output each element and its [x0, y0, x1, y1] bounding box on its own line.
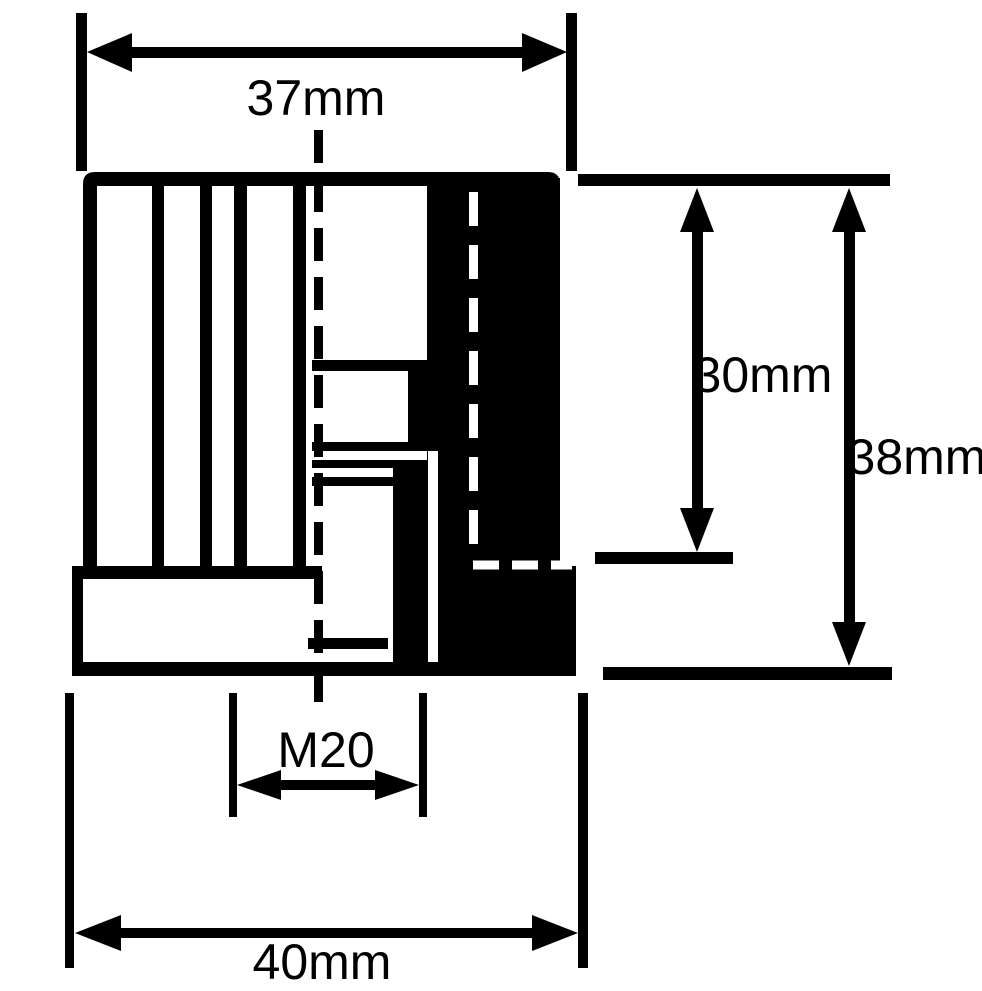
rib [152, 186, 164, 566]
section-white-slot [428, 451, 438, 662]
section-wall [427, 178, 560, 662]
section-thread-bar [312, 442, 438, 451]
arrowhead-left-icon [237, 770, 281, 800]
reference-line-top [578, 174, 890, 186]
section-bore-step-side [408, 360, 428, 451]
section-inner-solid [393, 460, 428, 662]
arrowhead-right-icon [375, 770, 419, 800]
flange-left-wall [72, 566, 83, 676]
flange-bottom-face [72, 662, 576, 676]
dimension-label-m20: M20 [277, 722, 374, 778]
section-white-reveals [428, 451, 438, 662]
rib [293, 186, 306, 566]
technical-drawing-canvas: 37mm 30mm 38mm M20 [0, 0, 982, 991]
arrowhead-down-icon [680, 508, 714, 552]
arrowhead-right-icon [532, 915, 578, 951]
threaded-insert-drawing: 37mm 30mm 38mm M20 [0, 0, 982, 991]
dimension-37mm: 37mm [76, 13, 577, 171]
rib [200, 186, 212, 566]
reference-line-bottom [603, 667, 892, 680]
dimension-arrow-shaft [844, 220, 855, 634]
arrowhead-right-icon [522, 33, 567, 72]
dimension-label-30mm: 30mm [694, 347, 833, 403]
body-left-wall [83, 186, 97, 566]
rib [234, 186, 247, 566]
reference-line-mid [595, 552, 733, 564]
dimension-right-side: 30mm 38mm [578, 174, 982, 680]
extension-line [578, 693, 588, 968]
extension-line [566, 13, 577, 171]
extension-line [65, 693, 74, 968]
dimension-label-38mm: 38mm [848, 429, 982, 485]
extension-line [419, 693, 427, 817]
extension-line [76, 13, 87, 171]
arrowhead-up-icon [680, 188, 714, 232]
extension-line [229, 693, 237, 817]
insert-section-solid [308, 178, 576, 662]
arrowhead-left-icon [75, 915, 121, 951]
arrowhead-up-icon [832, 188, 866, 232]
arrowhead-left-icon [87, 33, 132, 72]
dimension-30mm: 30mm [680, 188, 832, 552]
dimension-arrow-shaft [120, 47, 532, 58]
dimension-label-40mm: 40mm [253, 934, 392, 990]
dimension-38mm: 38mm [832, 188, 982, 666]
arrowhead-down-icon [832, 622, 866, 666]
section-flange-rim [558, 566, 576, 662]
dimension-label-37mm: 37mm [247, 70, 386, 126]
section-thread-bar [312, 477, 393, 486]
dimension-arrow-shaft [262, 780, 394, 790]
dimension-m20: M20 [229, 693, 427, 817]
body-shoulder-bar [72, 566, 322, 579]
